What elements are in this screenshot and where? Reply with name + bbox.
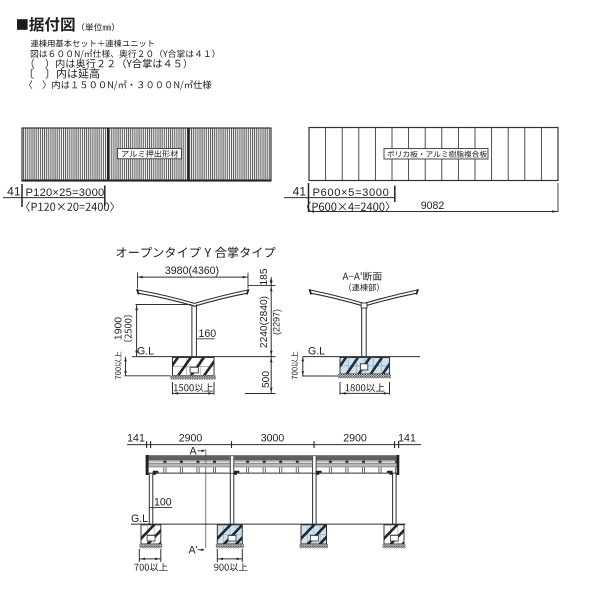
svg-text:500: 500 <box>261 371 272 388</box>
svg-text:41: 41 <box>293 185 307 199</box>
svg-text:G.L: G.L <box>137 346 154 358</box>
svg-text:1900: 1900 <box>114 317 125 340</box>
svg-text:3000: 3000 <box>261 433 285 445</box>
svg-text:160: 160 <box>199 328 217 340</box>
svg-text:2900: 2900 <box>343 433 367 445</box>
svg-text:2240(2840): 2240(2840) <box>259 296 270 348</box>
svg-text:(2297): (2297) <box>272 309 282 335</box>
svg-text:9082: 9082 <box>421 200 445 212</box>
svg-text:100: 100 <box>154 497 172 509</box>
svg-text:3980(4360): 3980(4360) <box>165 265 219 277</box>
svg-text:G.L: G.L <box>308 346 325 358</box>
svg-text:141: 141 <box>127 433 145 445</box>
svg-text:A': A' <box>189 545 198 557</box>
svg-text:41: 41 <box>7 185 21 199</box>
svg-text:G.L: G.L <box>131 513 148 525</box>
svg-text:185: 185 <box>259 268 270 285</box>
svg-text:141: 141 <box>398 433 416 445</box>
svg-text:2900: 2900 <box>179 433 203 445</box>
